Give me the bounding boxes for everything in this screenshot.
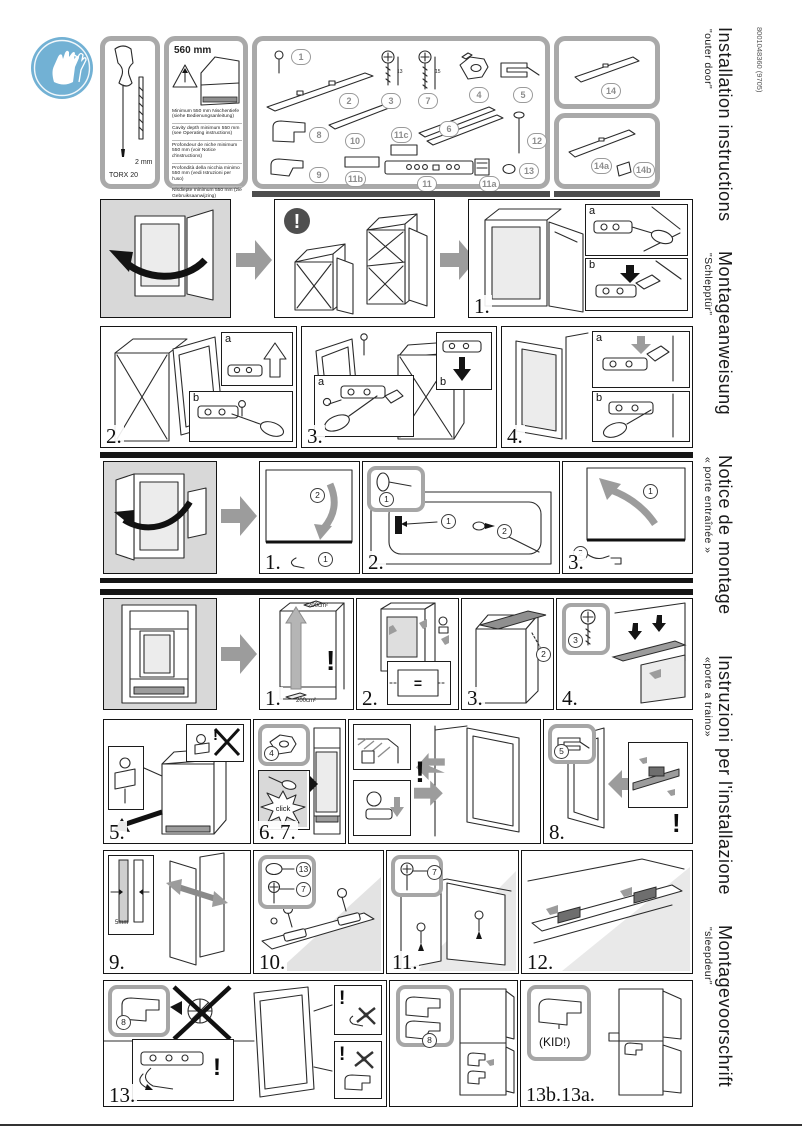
gap-size-label: 5mm — [115, 920, 128, 926]
torx-label: TORX 20 — [109, 172, 138, 179]
panel-step-6-7: 4 click 6. 7. — [253, 719, 346, 844]
step-label: 8. — [547, 821, 567, 843]
step-label: 11. — [390, 951, 419, 973]
part-badge-7: 7 — [418, 93, 438, 109]
warning-mark: ! — [326, 645, 335, 677]
title-en: Installation instructions "outer door" — [702, 27, 735, 222]
part-badge-12: 12 — [527, 133, 547, 149]
sequence-1-badge: 1 — [379, 492, 394, 507]
note-it: Profondità della nicchia minimo 550 mm (… — [172, 163, 242, 182]
panel-i3-rail-on-top: 2 3. — [461, 598, 554, 710]
title-de-text: Montageanweisung — [714, 251, 735, 415]
panel-step-11: 7 11. — [386, 850, 519, 974]
part-badge-11a: 11a — [479, 176, 500, 192]
inset-b-screw-tighten: b — [592, 391, 690, 442]
panel-m1: 2 1 1. — [259, 461, 360, 574]
callout-bracket-4: 4 — [258, 724, 310, 766]
part-badge-14: 14 — [601, 83, 621, 99]
step-label: 13b.13a. — [524, 1084, 597, 1106]
step-label: 3. — [305, 425, 325, 447]
warning-triangle-icon — [173, 65, 197, 87]
section-divider — [100, 578, 693, 583]
inset-b-screwdriver: b — [189, 391, 293, 442]
callout-screw-7: 7 — [391, 855, 443, 897]
inset-letter: a — [225, 333, 231, 345]
part-badge-11b: 11b — [345, 171, 366, 187]
panel-step-3-outer: a b 3. — [301, 326, 497, 448]
note-de: Minimum 550 mm Nischentiefe (siehe Bedie… — [172, 107, 242, 120]
warning-mark: ! — [213, 1054, 221, 1082]
inset-roller — [108, 746, 144, 810]
inset-a-bracket-up: a — [221, 332, 293, 386]
inset-alignment: = — [387, 661, 451, 705]
callout-cap-screw: 13 7 — [258, 855, 316, 909]
inset-hinge-detail — [353, 780, 411, 836]
section-divider — [100, 589, 693, 595]
sequence-1-badge: 1 — [441, 514, 456, 529]
panel-step-5: ! 5. — [103, 719, 251, 844]
inset-letter: b — [596, 392, 602, 404]
inset-letter: b — [440, 376, 446, 388]
step-label: 1. — [472, 295, 492, 317]
inset-b-bracket-remove: b — [585, 258, 688, 311]
step-label: 3. — [465, 687, 485, 709]
panel-covers-place: 8 — [389, 980, 518, 1107]
panel-step-1-outer: a b 1. — [468, 199, 693, 318]
parts-overview-panel: 1 2 3 13 7 15 4 5 8 10 11c 6 12 9 11b 11… — [252, 36, 550, 189]
inset-corner-profile — [353, 724, 411, 770]
part-7-ref-badge: 7 — [427, 865, 442, 880]
step-label: 5. — [107, 821, 127, 843]
title-fr-subtitle: « porte entraînée » — [702, 457, 714, 615]
step-label: 2. — [366, 551, 386, 573]
panel-i1-ventilation: 200cm² 200cm² ! 1. — [259, 598, 354, 710]
part-13-ref-badge: 13 — [296, 862, 311, 877]
panel-step-2-outer: a b 2. — [100, 326, 297, 448]
cavity-depth-panel: 560 mm Minimum 550 mm Nischentiefe (sieh… — [164, 36, 248, 189]
part-5-ref-badge: 5 — [554, 744, 569, 759]
panel-step-10: 13 7 10. — [253, 850, 384, 974]
step-label: 9. — [107, 951, 127, 973]
panel-step-13b-13a: (KID!) 13b.13a. — [520, 980, 693, 1107]
inset-5mm-gap: 5mm — [108, 855, 154, 935]
warning-mark: ! — [672, 808, 681, 839]
callout-cover-kid: (KID!) — [527, 985, 591, 1061]
panel-shadow — [252, 191, 550, 197]
title-de-subtitle: "Schlepptür" — [702, 253, 714, 415]
panel-appliance-types: ! — [274, 199, 435, 318]
screw7-length: 15 — [435, 69, 441, 75]
title-nl: Montagevoorschrift "sleepdeur" — [702, 925, 735, 1087]
step-label: 10. — [257, 951, 287, 973]
next-arrow-icon — [221, 496, 257, 536]
warning-mark: ! — [339, 988, 345, 1010]
step-label: 4. — [560, 687, 580, 709]
inset-letter: b — [589, 259, 595, 271]
kid-label: (KID!) — [539, 1035, 570, 1049]
inset-letter: a — [318, 376, 324, 388]
part-badge-10: 10 — [345, 133, 365, 149]
cavity-notes: Minimum 550 mm Nischentiefe (siehe Bedie… — [169, 107, 245, 203]
panel-m3: 1 2 3. — [562, 461, 693, 574]
panel-step-12: 12. — [521, 850, 693, 974]
part-badge-14a: 14a — [591, 158, 612, 174]
svg-text:=: = — [414, 675, 422, 691]
title-nl-subtitle: "sleepdeur" — [702, 927, 714, 1087]
step-label: 1. — [263, 551, 283, 573]
part-3-ref-badge: 3 — [568, 633, 583, 648]
step-label: 2. — [360, 687, 380, 709]
note-fr: Profondeur de niche minimum 550 mm (voir… — [172, 140, 242, 159]
part-badge-14b: 14b — [633, 162, 655, 178]
part-7-ref-badge: 7 — [296, 882, 311, 897]
inset-slider-engage — [628, 742, 688, 808]
sequence-2-badge: 2 — [536, 647, 551, 662]
part-8-ref-badge: 8 — [422, 1033, 437, 1048]
step-label: 1. — [263, 687, 283, 709]
callout-pin: 1 — [367, 466, 425, 512]
part-badge-4: 4 — [469, 87, 489, 103]
title-fr-text: Notice de montage — [714, 455, 735, 615]
sequence-1-badge: 1 — [643, 484, 658, 499]
panel-shadow — [554, 191, 660, 197]
inset-cut-pin-bottom: ! — [334, 1041, 382, 1099]
inset-a-hinge-screw: a — [585, 204, 688, 256]
panel-step-8: 5 ! 8. — [543, 719, 693, 844]
part-8-ref-badge: 8 — [116, 1015, 131, 1030]
title-en-text: Installation instructions — [714, 27, 735, 222]
title-it-subtitle: «porte a traino» — [702, 657, 714, 895]
title-de: Montageanweisung "Schlepptür" — [702, 251, 735, 415]
part-badge-3: 3 — [381, 93, 401, 109]
wear-gloves-icon — [30, 36, 94, 100]
part-14ab-panel: 14a 14b — [554, 113, 660, 189]
next-arrow-icon — [221, 634, 257, 674]
callout-part-5: 5 — [548, 724, 596, 764]
note-en: Cavity depth minimum 550 mm (see Operati… — [172, 123, 242, 137]
part-badge-6: 6 — [439, 121, 459, 137]
screw3-length: 13 — [397, 69, 403, 75]
inset-letter: a — [596, 332, 602, 344]
part-badge-1: 1 — [291, 49, 311, 65]
part-badge-11c: 11c — [391, 127, 412, 143]
step-label: 13. — [107, 1084, 137, 1106]
part-badge-2: 2 — [339, 93, 359, 109]
step-label: 6. 7. — [257, 821, 298, 843]
inset-letter: a — [589, 205, 595, 217]
part-14-panel: 14 — [554, 36, 660, 109]
part-badge-13: 13 — [519, 163, 539, 179]
part-badge-11: 11 — [417, 176, 437, 192]
inset-letter: b — [193, 392, 199, 404]
step-label: 3. — [566, 551, 586, 573]
part-badge-8: 8 — [309, 127, 329, 143]
warning-mark: ! — [213, 727, 218, 744]
instruction-sheet-page: { "page": { "code": "8001048360 (9705)" … — [0, 0, 802, 1134]
sequence-2-badge: 2 — [310, 488, 325, 503]
panel-i4-fix-rail: 3 4. — [556, 598, 693, 710]
inset-cut-pin-top: ! — [334, 985, 382, 1035]
vent-area-bottom: 200cm² — [296, 698, 316, 704]
title-en-subtitle: "outer door" — [702, 29, 714, 222]
inset-a-screwdriver: a — [314, 375, 414, 437]
title-it: Instruzioni per l'installazione «porte a… — [702, 655, 735, 895]
vent-area-top: 200cm² — [308, 603, 328, 609]
svg-text:!: ! — [294, 211, 301, 233]
inset-bracket-cover: ! — [132, 1039, 234, 1101]
title-nl-text: Montagevoorschrift — [714, 925, 735, 1087]
note-nl: Nisdiepte minimum 550 mm (zie Gebruiksaa… — [172, 186, 242, 200]
panel-door-engage: ! — [348, 719, 541, 844]
callout-covers-8-9: 8 — [396, 985, 454, 1047]
next-arrow-icon — [236, 240, 272, 280]
bit-size-label: 2 mm — [135, 159, 153, 166]
part-badge-9: 9 — [309, 167, 329, 183]
callout-screw-3: 3 — [562, 603, 610, 655]
sequence-2-badge: 2 — [497, 524, 512, 539]
inset-a-bracket-insert: a — [592, 331, 690, 388]
sequence-1-badge: 1 — [318, 552, 333, 567]
callout-cover-8: 8 — [108, 985, 170, 1037]
exclamation-icon: ! — [284, 208, 310, 234]
part-badge-5: 5 — [513, 87, 533, 103]
tool-panel: 2 mm TORX 20 — [100, 36, 160, 189]
inset-b-bracket-down: b — [436, 332, 492, 390]
title-fr: Notice de montage « porte entraînée » — [702, 455, 735, 615]
inset-no-roller-warning: ! — [186, 724, 244, 762]
step-label: 2. — [104, 425, 124, 447]
panel-niche-intro — [103, 598, 217, 710]
panel-step-9: 5mm 9. — [103, 850, 251, 974]
warning-mark: ! — [339, 1044, 345, 1066]
panel-door-swing-intro — [103, 461, 217, 574]
step-label: 12. — [525, 951, 555, 973]
warning-mark: ! — [415, 756, 425, 790]
part-4-ref-badge: 4 — [264, 746, 279, 761]
panel-m2: 1 1 2 2. — [362, 461, 560, 574]
panel-open-door-intro — [100, 199, 231, 318]
panel-step-13: 8 ! ! ! 13. — [103, 980, 387, 1107]
step-label: 4. — [505, 425, 525, 447]
document-code: 8001048360 (9705) — [755, 27, 764, 92]
title-it-text: Instruzioni per l'installazione — [714, 655, 735, 895]
footer-rule — [0, 1124, 802, 1126]
panel-step-4-outer: a b 4. — [501, 326, 693, 448]
panel-i2-hinge-side: = 2. — [356, 598, 459, 710]
svg-text:click: click — [276, 804, 291, 813]
section-divider — [100, 452, 693, 458]
